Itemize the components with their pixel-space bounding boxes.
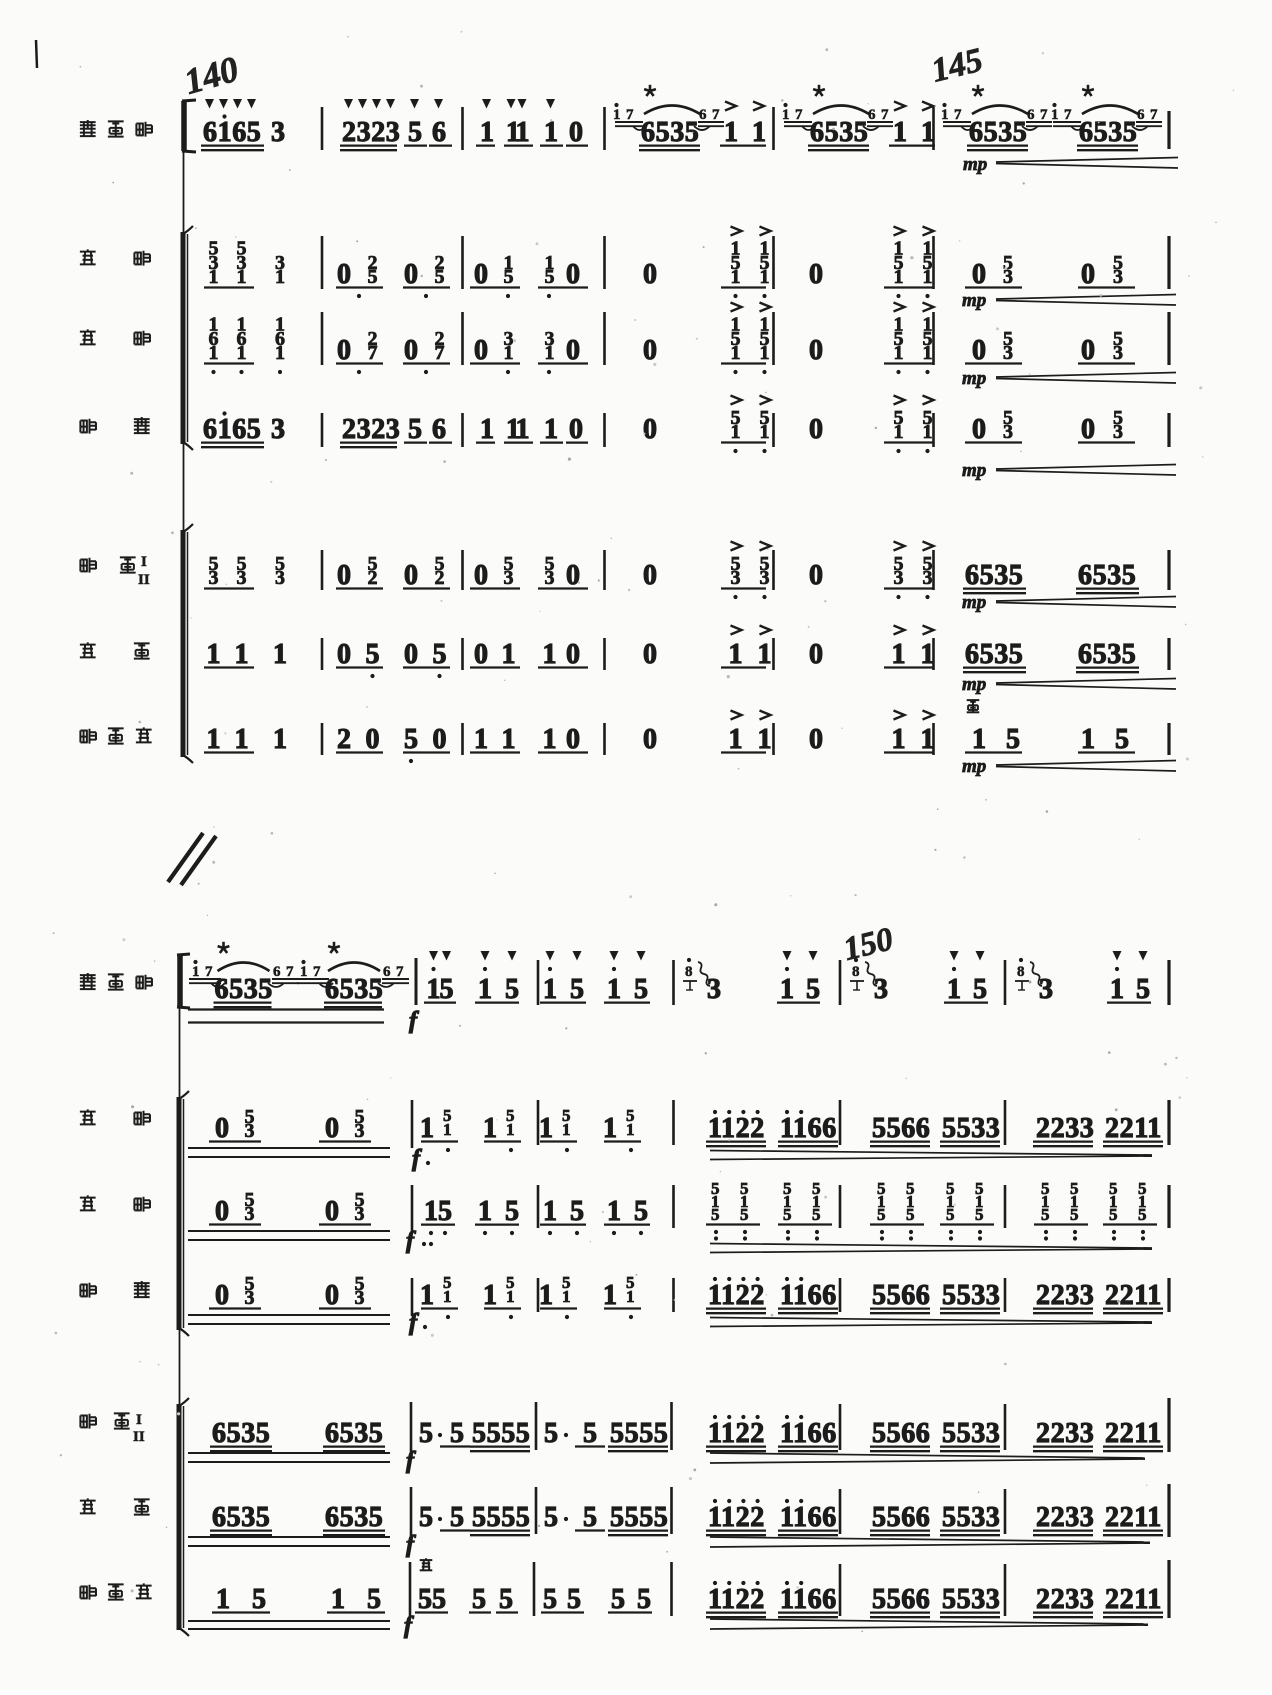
svg-text:1166: 1166 [780, 1502, 837, 1533]
svg-text:3: 3 [1039, 974, 1054, 1005]
svg-text:f: f [409, 1310, 419, 1336]
svg-text:1: 1 [782, 107, 790, 123]
svg-text:5: 5 [634, 974, 649, 1005]
svg-text:0: 0 [566, 639, 581, 670]
svg-text:3: 3 [731, 567, 741, 589]
svg-text:1: 1 [480, 414, 495, 445]
svg-text:1: 1 [544, 117, 559, 148]
svg-text:1: 1 [1081, 724, 1096, 755]
svg-text:1: 1 [483, 1280, 498, 1311]
svg-text:2323: 2323 [342, 117, 400, 148]
svg-text:1: 1 [923, 266, 933, 288]
svg-text:5: 5 [404, 724, 419, 755]
svg-text:3: 3 [245, 1287, 255, 1309]
svg-text:0: 0 [972, 259, 987, 290]
svg-text:1166: 1166 [780, 1418, 837, 1449]
svg-text:7: 7 [368, 342, 378, 364]
svg-text:1: 1 [752, 117, 767, 148]
svg-text:f: f [406, 1448, 416, 1474]
svg-text:5: 5 [1138, 1205, 1147, 1224]
svg-text:5: 5 [252, 1584, 267, 1615]
svg-text:7: 7 [286, 964, 294, 980]
svg-text:5: 5 [408, 117, 423, 148]
svg-text:1122: 1122 [708, 1584, 765, 1615]
svg-text:7: 7 [1040, 107, 1048, 123]
svg-text:1: 1 [235, 724, 250, 755]
svg-text:0: 0 [404, 335, 419, 366]
svg-text:5533: 5533 [942, 1280, 1000, 1311]
svg-text:5: 5 [450, 1418, 465, 1449]
svg-text:5533: 5533 [942, 1418, 1000, 1449]
svg-text:150: 150 [840, 921, 897, 968]
svg-text:0: 0 [566, 724, 581, 755]
svg-text:0: 0 [1081, 259, 1096, 290]
svg-text:6535: 6535 [641, 117, 699, 148]
svg-text:3: 3 [1003, 266, 1013, 288]
svg-text:1122: 1122 [708, 1280, 765, 1311]
svg-text:0: 0 [809, 639, 824, 670]
svg-text:3: 3 [874, 974, 889, 1005]
svg-text:5: 5 [812, 1205, 821, 1224]
svg-text:2323: 2323 [342, 414, 400, 445]
svg-text:2: 2 [368, 567, 378, 589]
svg-text:3: 3 [275, 567, 285, 589]
svg-text:1: 1 [613, 107, 621, 123]
svg-text:5: 5 [543, 1584, 558, 1615]
svg-text:1: 1 [478, 1196, 493, 1227]
svg-text:0: 0 [404, 639, 419, 670]
svg-text:0: 0 [972, 414, 987, 445]
svg-text:1122: 1122 [708, 1418, 765, 1449]
svg-text:0: 0 [325, 1113, 340, 1144]
svg-text:5: 5 [637, 1584, 652, 1615]
svg-text:5: 5 [366, 639, 381, 670]
svg-text:6: 6 [383, 964, 391, 980]
svg-text:5555: 5555 [610, 1502, 668, 1533]
svg-text:mp: mp [963, 154, 987, 175]
svg-text:5: 5 [740, 1205, 749, 1224]
svg-text:6535: 6535 [1079, 117, 1137, 148]
svg-text:3: 3 [355, 1287, 365, 1309]
svg-text:1: 1 [760, 266, 770, 288]
svg-text:1: 1 [947, 974, 962, 1005]
svg-text:1: 1 [923, 342, 933, 364]
svg-text:1: 1 [300, 964, 308, 980]
svg-text:7: 7 [881, 107, 889, 123]
svg-text:2211: 2211 [1105, 1280, 1162, 1311]
svg-text:0: 0 [643, 639, 658, 670]
svg-text:3: 3 [1113, 421, 1123, 443]
svg-text:I: I [141, 554, 147, 570]
svg-text:0: 0 [433, 724, 448, 755]
svg-text:6535: 6535 [325, 974, 383, 1005]
svg-text:1: 1 [731, 266, 741, 288]
svg-text:1: 1 [760, 342, 770, 364]
svg-text:7: 7 [396, 964, 404, 980]
svg-text:1: 1 [562, 1120, 571, 1139]
svg-text:1: 1 [543, 974, 558, 1005]
svg-text:0: 0 [474, 335, 489, 366]
svg-text:5: 5 [504, 266, 514, 288]
svg-text:5566: 5566 [872, 1113, 930, 1144]
svg-text:1: 1 [562, 1287, 571, 1306]
svg-text:3: 3 [1113, 342, 1123, 364]
svg-text:1: 1 [275, 342, 285, 364]
svg-text:1: 1 [545, 342, 555, 364]
svg-text:5566: 5566 [872, 1584, 930, 1615]
svg-text:5: 5 [1070, 1205, 1079, 1224]
svg-text:5: 5 [450, 1502, 465, 1533]
svg-text:2233: 2233 [1036, 1584, 1094, 1615]
svg-text:1: 1 [543, 724, 558, 755]
svg-text:1: 1 [893, 117, 908, 148]
svg-text:1: 1 [731, 421, 741, 443]
svg-text:5: 5 [419, 1502, 434, 1533]
svg-text:1: 1 [207, 639, 222, 670]
svg-text:0: 0 [366, 724, 381, 755]
svg-text:5: 5 [1109, 1205, 1118, 1224]
svg-text:3: 3 [245, 1203, 255, 1225]
svg-text:0: 0 [643, 560, 658, 591]
svg-text:5: 5 [877, 1205, 886, 1224]
svg-text:5566: 5566 [872, 1418, 930, 1449]
svg-text:5: 5 [806, 974, 821, 1005]
svg-text:1: 1 [273, 639, 288, 670]
svg-text:1: 1 [420, 1280, 435, 1311]
svg-text:0: 0 [337, 560, 352, 591]
svg-text:6: 6 [1027, 107, 1035, 123]
svg-text:5: 5 [367, 1584, 382, 1615]
svg-text:5: 5 [505, 974, 520, 1005]
svg-text:1: 1 [543, 639, 558, 670]
svg-text:1: 1 [209, 266, 219, 288]
svg-text:6: 6 [868, 107, 876, 123]
svg-text:f: f [404, 1613, 414, 1639]
svg-text:1: 1 [894, 266, 904, 288]
svg-text:1: 1 [758, 639, 773, 670]
svg-text:0: 0 [215, 1113, 230, 1144]
svg-text:5: 5 [545, 266, 555, 288]
svg-text:5533: 5533 [942, 1584, 1000, 1615]
svg-text:0: 0 [972, 335, 987, 366]
svg-text:7: 7 [1150, 107, 1158, 123]
svg-text:6535: 6535 [212, 1418, 270, 1449]
svg-text:140: 140 [180, 49, 243, 102]
svg-text:6: 6 [273, 964, 281, 980]
svg-text:mp: mp [962, 592, 986, 613]
svg-text:2: 2 [337, 724, 352, 755]
svg-text:1: 1 [237, 342, 247, 364]
svg-text:0: 0 [325, 1280, 340, 1311]
svg-text:0: 0 [566, 335, 581, 366]
svg-text:1: 1 [420, 1113, 435, 1144]
svg-text:5: 5 [505, 1196, 520, 1227]
svg-text:1: 1 [275, 266, 285, 288]
svg-text:II: II [133, 1429, 145, 1445]
svg-text:1: 1 [543, 1196, 558, 1227]
svg-text:5: 5 [906, 1205, 915, 1224]
svg-text:1: 1 [731, 342, 741, 364]
svg-text:5: 5 [946, 1205, 955, 1224]
svg-text:5: 5 [408, 414, 423, 445]
svg-text:f: f [409, 1008, 419, 1034]
svg-text:1: 1 [506, 1120, 515, 1139]
svg-text:5533: 5533 [942, 1502, 1000, 1533]
svg-text:5555: 5555 [472, 1502, 530, 1533]
svg-text:1: 1 [506, 1287, 515, 1306]
svg-text:1: 1 [478, 974, 493, 1005]
svg-text:7: 7 [795, 107, 803, 123]
svg-text:1: 1 [892, 639, 907, 670]
svg-text:5: 5 [1006, 724, 1021, 755]
svg-text:0: 0 [337, 639, 352, 670]
svg-text:0: 0 [474, 259, 489, 290]
svg-text:2233: 2233 [1036, 1280, 1094, 1311]
svg-text:1: 1 [502, 639, 517, 670]
svg-text:2233: 2233 [1036, 1502, 1094, 1533]
svg-text:5: 5 [433, 639, 448, 670]
svg-text:mp: mp [962, 460, 986, 481]
svg-text:1: 1 [894, 421, 904, 443]
svg-text:1: 1 [894, 342, 904, 364]
svg-text:6535: 6535 [969, 117, 1027, 148]
svg-text:1: 1 [724, 117, 739, 148]
svg-text:6535: 6535 [965, 560, 1023, 591]
svg-text:5533: 5533 [942, 1113, 1000, 1144]
svg-text:3: 3 [1003, 342, 1013, 364]
svg-text:7: 7 [954, 107, 962, 123]
svg-text:6: 6 [432, 117, 447, 148]
svg-text:1: 1 [209, 342, 219, 364]
svg-text:7: 7 [435, 342, 445, 364]
svg-text:7: 7 [712, 107, 720, 123]
svg-text:0: 0 [809, 560, 824, 591]
svg-text:6: 6 [699, 107, 707, 123]
svg-text:8: 8 [852, 964, 860, 980]
svg-text:0: 0 [643, 259, 658, 290]
svg-text:0: 0 [1081, 414, 1096, 445]
svg-text:5: 5 [1041, 1205, 1050, 1224]
svg-text:5566: 5566 [872, 1502, 930, 1533]
svg-text:1: 1 [1051, 107, 1059, 123]
svg-text:145: 145 [928, 42, 986, 90]
svg-text:1122: 1122 [708, 1113, 765, 1144]
svg-text:1: 1 [237, 266, 247, 288]
svg-text:1: 1 [483, 1113, 498, 1144]
svg-text:3: 3 [355, 1203, 365, 1225]
svg-text:0: 0 [404, 259, 419, 290]
svg-text:5: 5 [1115, 724, 1130, 755]
svg-text:7: 7 [1064, 107, 1072, 123]
svg-text:5: 5 [583, 1418, 598, 1449]
svg-text:0: 0 [809, 335, 824, 366]
svg-text:7: 7 [626, 107, 634, 123]
svg-text:6535: 6535 [212, 1502, 270, 1533]
svg-text:5555: 5555 [472, 1418, 530, 1449]
svg-text:5: 5 [438, 1196, 453, 1227]
svg-text:7: 7 [313, 964, 321, 980]
svg-text:f: f [412, 1146, 422, 1172]
svg-text:0: 0 [325, 1196, 340, 1227]
svg-text:1: 1 [607, 1196, 622, 1227]
svg-text:2211: 2211 [1105, 1502, 1162, 1533]
svg-text:1: 1 [443, 1120, 452, 1139]
svg-text:1: 1 [607, 974, 622, 1005]
svg-text:0: 0 [809, 259, 824, 290]
svg-text:5: 5 [435, 266, 445, 288]
svg-text:1: 1 [516, 117, 531, 148]
svg-text:2211: 2211 [1105, 1584, 1162, 1615]
svg-text:5: 5 [544, 1418, 559, 1449]
svg-text:1: 1 [273, 724, 288, 755]
svg-text:0: 0 [337, 335, 352, 366]
svg-text:1: 1 [626, 1120, 635, 1139]
svg-text:0: 0 [337, 259, 352, 290]
svg-text:1: 1 [758, 724, 773, 755]
svg-text:f: f [406, 1532, 416, 1558]
svg-text:0: 0 [809, 724, 824, 755]
svg-text:mp: mp [962, 756, 986, 777]
svg-text:1: 1 [892, 724, 907, 755]
svg-text:1166: 1166 [780, 1584, 837, 1615]
svg-text:0: 0 [404, 560, 419, 591]
svg-text:2233: 2233 [1036, 1418, 1094, 1449]
svg-text:1: 1 [474, 724, 489, 755]
svg-text:1: 1 [504, 342, 514, 364]
svg-text:0: 0 [215, 1280, 230, 1311]
svg-text:1: 1 [443, 1287, 452, 1306]
svg-text:3: 3 [245, 1120, 255, 1142]
svg-text:mp: mp [962, 368, 986, 389]
svg-text:0: 0 [569, 117, 584, 148]
svg-text:8: 8 [1017, 964, 1025, 980]
svg-text:2: 2 [435, 567, 445, 589]
svg-text:0: 0 [809, 414, 824, 445]
svg-text:0: 0 [569, 414, 584, 445]
svg-text:5: 5 [583, 1502, 598, 1533]
svg-text:1: 1 [941, 107, 949, 123]
svg-text:3: 3 [271, 414, 286, 445]
svg-text:1: 1 [729, 639, 744, 670]
svg-text:5: 5 [499, 1584, 514, 1615]
svg-text:1166: 1166 [780, 1280, 837, 1311]
svg-text:3: 3 [504, 567, 514, 589]
svg-text:3: 3 [271, 117, 286, 148]
svg-text:5: 5 [1136, 974, 1151, 1005]
svg-text:3: 3 [923, 567, 933, 589]
svg-text:1: 1 [216, 1584, 231, 1615]
svg-text:1: 1 [424, 1196, 439, 1227]
svg-text:3: 3 [237, 567, 247, 589]
svg-text:5: 5 [570, 1196, 585, 1227]
svg-text:6165: 6165 [203, 414, 261, 445]
svg-text:1: 1 [972, 724, 987, 755]
svg-text:5: 5 [570, 974, 585, 1005]
svg-text:5: 5 [711, 1205, 720, 1224]
svg-text:mp: mp [962, 674, 986, 695]
svg-text:1166: 1166 [780, 1113, 837, 1144]
svg-text:5: 5 [432, 1584, 447, 1615]
svg-text:0: 0 [566, 259, 581, 290]
svg-text:3: 3 [707, 974, 722, 1005]
svg-text:6535: 6535 [965, 639, 1023, 670]
svg-text:5: 5 [783, 1205, 792, 1224]
svg-text:2211: 2211 [1105, 1113, 1162, 1144]
svg-text:3: 3 [545, 567, 555, 589]
svg-text:0: 0 [215, 1196, 230, 1227]
svg-text:3: 3 [1113, 266, 1123, 288]
svg-text:II: II [138, 572, 150, 588]
svg-text:0: 0 [643, 335, 658, 366]
svg-text:1: 1 [331, 1584, 346, 1615]
svg-text:0: 0 [566, 560, 581, 591]
svg-text:0: 0 [474, 639, 489, 670]
svg-text:0: 0 [643, 414, 658, 445]
svg-text:1: 1 [539, 1280, 554, 1311]
svg-text:5: 5 [975, 1205, 984, 1224]
svg-text:1122: 1122 [708, 1502, 765, 1533]
svg-text:5555: 5555 [610, 1418, 668, 1449]
svg-text:1: 1 [480, 117, 495, 148]
svg-text:5: 5 [368, 266, 378, 288]
svg-text:0: 0 [643, 724, 658, 755]
svg-text:6: 6 [432, 414, 447, 445]
svg-text:1: 1 [516, 414, 531, 445]
svg-text:0: 0 [1081, 335, 1096, 366]
svg-text:2233: 2233 [1036, 1113, 1094, 1144]
svg-text:5: 5 [419, 1418, 434, 1449]
svg-text:6: 6 [1137, 107, 1145, 123]
svg-text:5: 5 [544, 1502, 559, 1533]
svg-text:6535: 6535 [810, 117, 868, 148]
svg-text:5566: 5566 [872, 1280, 930, 1311]
svg-text:1: 1 [235, 639, 250, 670]
svg-text:1: 1 [626, 1287, 635, 1306]
svg-text:I: I [136, 1412, 142, 1428]
svg-text:3: 3 [209, 567, 219, 589]
svg-text:3: 3 [355, 1120, 365, 1142]
svg-text:5: 5 [634, 1196, 649, 1227]
svg-text:1: 1 [192, 964, 200, 980]
svg-text:5: 5 [440, 974, 455, 1005]
svg-text:f: f [406, 1228, 416, 1254]
svg-text:1: 1 [603, 1113, 618, 1144]
svg-text:1: 1 [760, 421, 770, 443]
svg-text:0: 0 [474, 560, 489, 591]
svg-text:1: 1 [729, 724, 744, 755]
svg-text:2211: 2211 [1105, 1418, 1162, 1449]
svg-text:6535: 6535 [215, 974, 273, 1005]
svg-text:1: 1 [923, 421, 933, 443]
svg-text:3: 3 [1003, 421, 1013, 443]
svg-text:1: 1 [780, 974, 795, 1005]
svg-text:1: 1 [1110, 974, 1125, 1005]
svg-text:mp: mp [962, 290, 986, 311]
svg-text:6165: 6165 [203, 117, 261, 148]
svg-text:6535: 6535 [325, 1502, 383, 1533]
svg-text:5: 5 [567, 1584, 582, 1615]
svg-text:5: 5 [973, 974, 988, 1005]
svg-text:8: 8 [685, 964, 693, 980]
svg-text:5: 5 [611, 1584, 626, 1615]
svg-text:6535: 6535 [325, 1418, 383, 1449]
svg-text:1: 1 [207, 724, 222, 755]
svg-text:1: 1 [603, 1280, 618, 1311]
svg-text:3: 3 [894, 567, 904, 589]
svg-text:1: 1 [544, 414, 559, 445]
svg-text:3: 3 [760, 567, 770, 589]
svg-text:1: 1 [502, 724, 517, 755]
